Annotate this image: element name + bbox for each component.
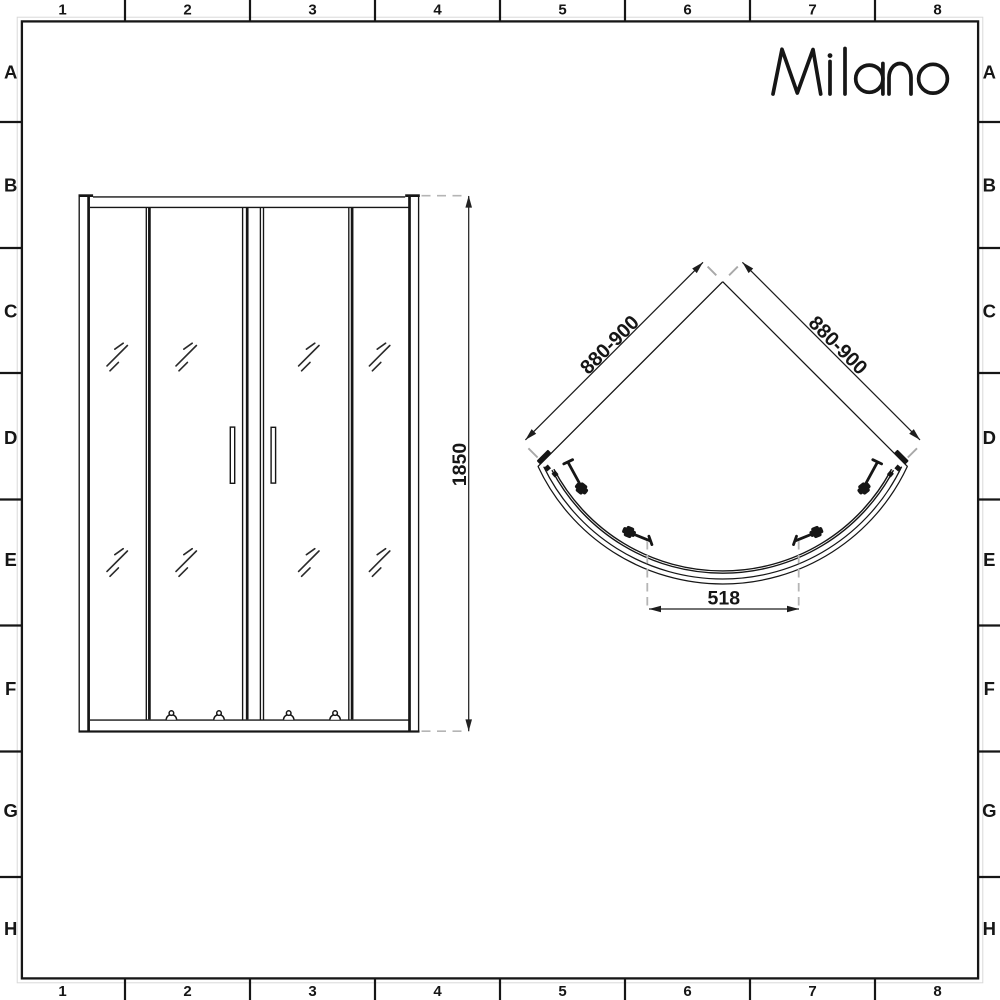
svg-text:G: G: [982, 800, 996, 821]
svg-text:8: 8: [933, 983, 941, 1000]
svg-text:H: H: [983, 918, 996, 939]
svg-text:C: C: [983, 301, 996, 322]
svg-text:3: 3: [308, 983, 316, 1000]
svg-text:1: 1: [58, 2, 66, 19]
svg-text:G: G: [4, 800, 18, 821]
svg-text:A: A: [4, 61, 17, 82]
svg-text:F: F: [984, 678, 995, 699]
svg-text:C: C: [4, 301, 17, 322]
svg-text:3: 3: [308, 2, 316, 19]
svg-text:D: D: [983, 427, 996, 448]
svg-text:6: 6: [683, 983, 691, 1000]
svg-text:7: 7: [808, 983, 816, 1000]
svg-text:1850: 1850: [449, 443, 471, 487]
svg-text:4: 4: [433, 2, 442, 19]
svg-text:518: 518: [708, 588, 741, 610]
svg-text:B: B: [4, 174, 17, 195]
svg-text:E: E: [983, 549, 995, 570]
svg-text:1: 1: [58, 983, 66, 1000]
svg-text:6: 6: [683, 2, 691, 19]
svg-text:2: 2: [183, 2, 191, 19]
svg-text:A: A: [983, 61, 996, 82]
svg-text:5: 5: [558, 2, 566, 19]
svg-text:5: 5: [558, 983, 566, 1000]
svg-text:B: B: [983, 174, 996, 195]
svg-text:2: 2: [183, 983, 191, 1000]
svg-text:F: F: [5, 678, 16, 699]
svg-text:H: H: [4, 918, 17, 939]
svg-text:E: E: [5, 549, 17, 570]
svg-text:8: 8: [933, 2, 941, 19]
svg-text:4: 4: [433, 983, 442, 1000]
svg-text:D: D: [4, 427, 17, 448]
svg-text:7: 7: [808, 2, 816, 19]
